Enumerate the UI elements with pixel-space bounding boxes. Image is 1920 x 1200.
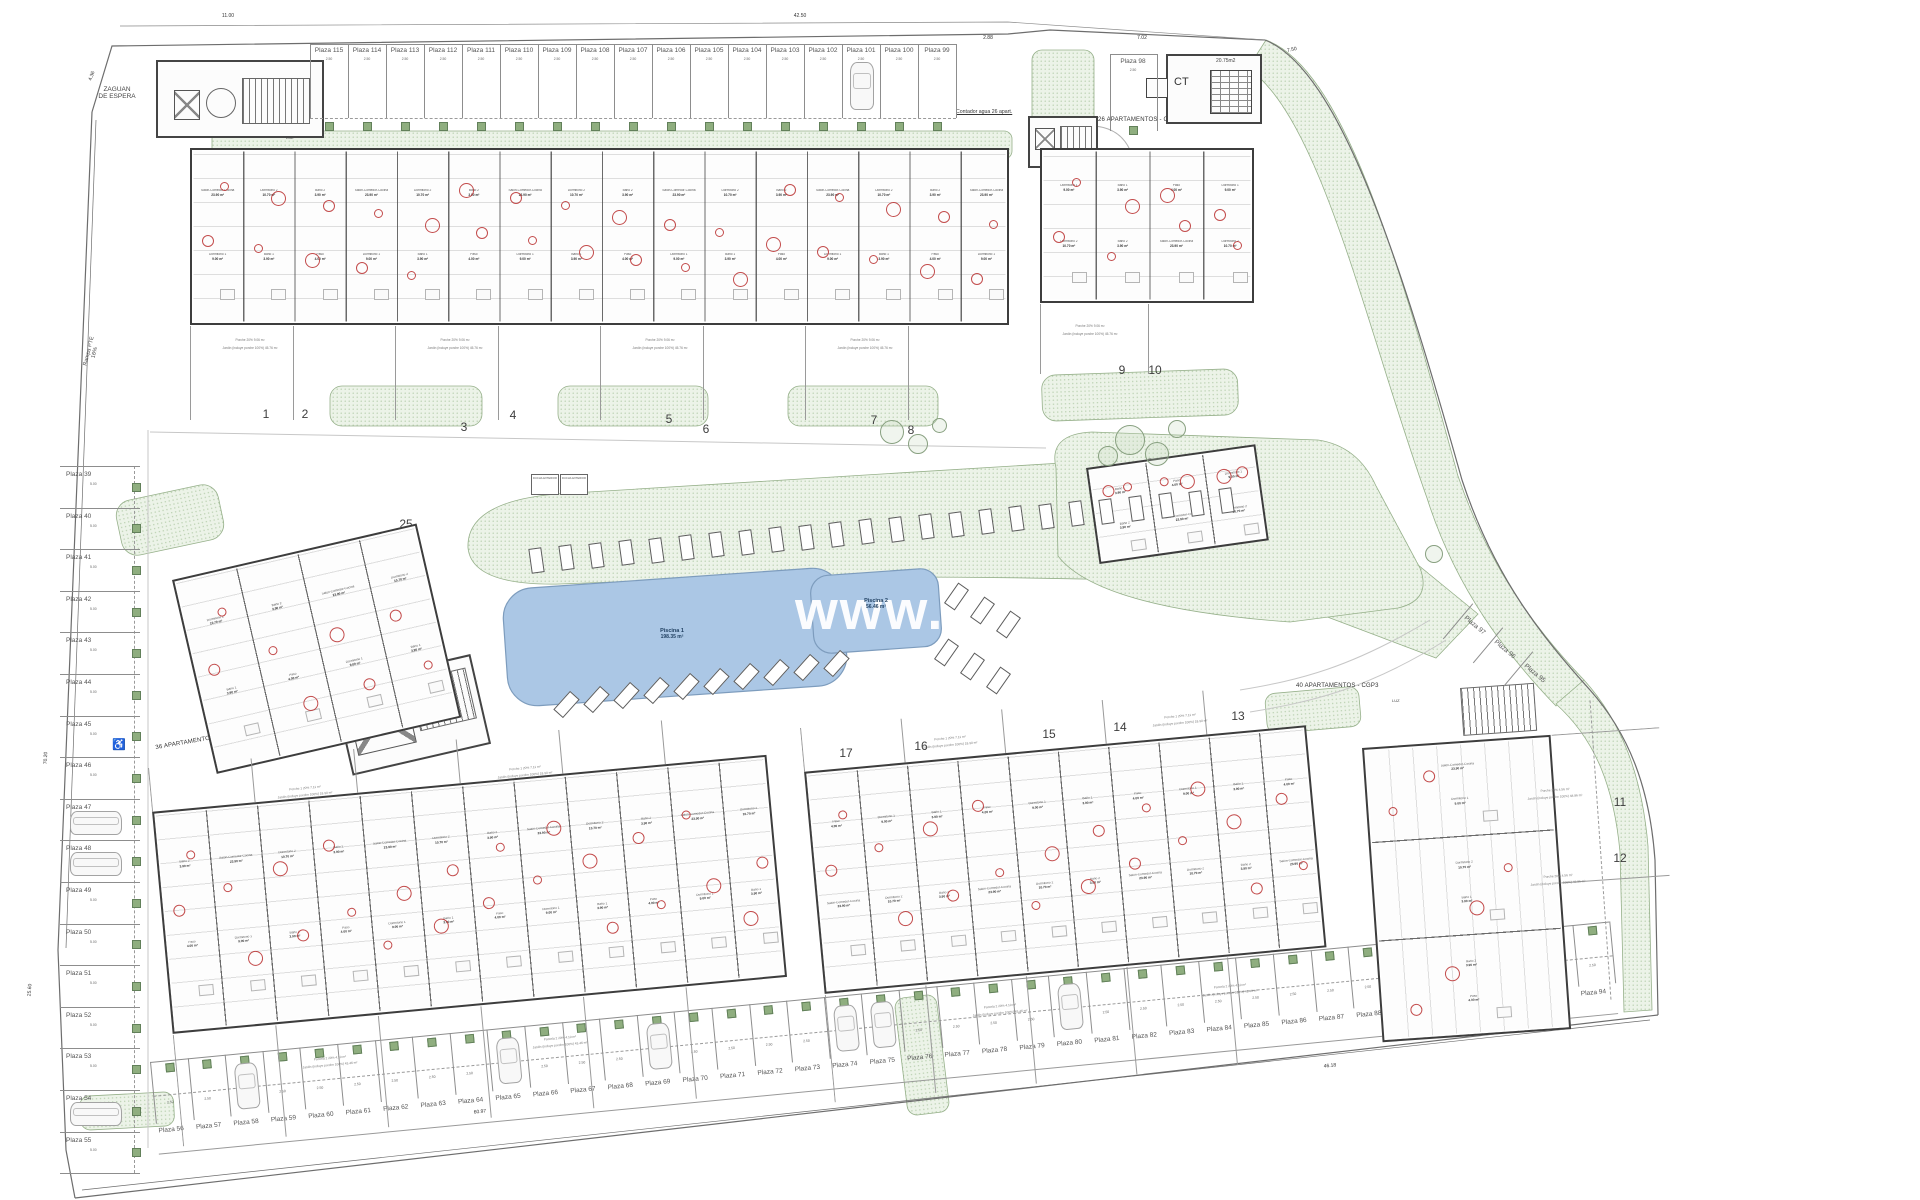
room-label: Dormitorio 210.70 m² [1170, 866, 1221, 878]
parking-stall-label: Plaza 110 [500, 47, 538, 54]
entry-core-west [156, 60, 324, 138]
door-swing-symbol [632, 832, 645, 845]
garden-divider [251, 758, 256, 802]
parking-stall [60, 466, 140, 467]
stall-depth-dim: 5.00 [90, 1023, 97, 1027]
shrub-marker [1363, 947, 1373, 957]
door-swing-symbol [1179, 220, 1191, 232]
door-swing-symbol [483, 897, 496, 910]
garden-divider [703, 326, 704, 420]
stall-depth-dim: 5.00 [90, 773, 97, 777]
room-label: Baño 13.90 m² [1213, 781, 1264, 793]
parking-stall [462, 44, 501, 118]
parking-stall-label: Plaza 106 [652, 47, 690, 54]
stall-depth-dim: 5.00 [90, 565, 97, 569]
parking-stall [804, 44, 843, 118]
room-label: Baño 23.90 m² [448, 189, 499, 196]
furniture-symbol [301, 974, 317, 986]
door-swing-symbol [561, 201, 570, 210]
garden-divider [275, 1025, 286, 1137]
furniture-symbol [938, 289, 953, 300]
garden-divider [1148, 304, 1149, 374]
room-label: Baño 23.90 m² [919, 889, 970, 901]
furniture-symbol [1187, 531, 1203, 544]
stairs-icon [242, 78, 310, 124]
shrub-marker [132, 566, 141, 575]
building-walls: Salón-Comedor-Cocina23.90 m²Dormitorio 1… [1362, 735, 1571, 1042]
parking-dashed-line [310, 118, 956, 119]
room-label: Dormitorio 210.70 m² [869, 894, 920, 906]
parking-stall [652, 44, 691, 118]
room-label: Baño 23.90 m² [313, 844, 365, 856]
room-label: Dormitorio 210.70 m² [184, 610, 247, 631]
parking-stall-label: Plaza 99 [918, 47, 956, 54]
zaguan-label: ZAGUANDE ESPERA [98, 86, 135, 100]
door-swing-symbol [1214, 209, 1226, 221]
door-swing-symbol [874, 843, 884, 853]
door-swing-symbol [1129, 857, 1142, 870]
room-label: Dormitorio 19.00 m² [1203, 184, 1254, 191]
shrub-marker [132, 899, 141, 908]
door-swing-symbol [1469, 900, 1485, 916]
shrub-marker [629, 122, 638, 131]
door-swing-symbol [356, 262, 368, 274]
garden-divider [925, 985, 936, 1093]
shrub-marker [165, 1063, 175, 1073]
room-label: Baño 23.90 m² [246, 596, 309, 617]
shrub-marker [933, 122, 942, 131]
parking-stall-label: Plaza 49 [66, 887, 91, 894]
door-swing-symbol [223, 883, 233, 893]
room-label: Paso4.00 m² [962, 804, 1013, 816]
room-label: Dormitorio 19.00 m² [861, 813, 912, 825]
room-label: Dormitorio 19.00 m² [1042, 184, 1096, 191]
door-swing-symbol [1299, 861, 1309, 871]
door-swing-symbol [1122, 482, 1132, 492]
shrub-marker [132, 649, 141, 658]
room-label: Paso4.00 m² [602, 253, 653, 260]
garden-label: Porche 20% 9.06 m² [440, 338, 469, 342]
furniture-symbol [1179, 272, 1194, 283]
shrub-marker [325, 122, 334, 131]
parking-stall-label: Plaza 55 [66, 1137, 91, 1144]
door-swing-symbol [273, 861, 289, 877]
parking-stall-label: Plaza 111 [462, 47, 500, 54]
building-south-east: Paso4.00 m²Salón-Comedor-Cocina23.90 m²D… [800, 681, 1338, 1102]
door-swing-symbol [297, 929, 310, 942]
elevator-icon [174, 90, 200, 120]
room-label: Dormitorio 210.70 m² [551, 189, 602, 196]
furniture-symbol [850, 944, 866, 956]
car-outline [850, 62, 874, 110]
room-label: Paso4.00 m² [628, 895, 680, 907]
parking-stall [766, 44, 805, 118]
room-label: Paso4.00 m² [910, 253, 961, 260]
shrub-marker [132, 774, 141, 783]
shrub-marker [515, 122, 524, 131]
garden-divider [395, 326, 396, 420]
furniture-symbol [476, 289, 491, 300]
plot-number: 3 [461, 420, 468, 434]
water-meter-26b-label: Contador agua 26 apart. [956, 109, 1012, 115]
furniture-symbol [1244, 523, 1260, 536]
door-swing-symbol [938, 211, 950, 223]
parking-stall-label: Plaza 50 [66, 929, 91, 936]
room-label: Dormitorio 19.00 m² [346, 253, 397, 260]
room-label: Paso4.00 m² [295, 253, 346, 260]
stall-width-dim: 2.50 [690, 57, 728, 61]
site-plan: www.nov ZAGUANDE ESPERA Rampa PTE 16% 26… [0, 0, 1920, 1200]
shrub-marker [743, 122, 752, 131]
parking-stall [880, 44, 919, 118]
building-walls: Dormitorio 19.00 m²Dormitorio 210.70 m²B… [1040, 148, 1254, 303]
garden-divider [1026, 976, 1037, 1084]
parking-stall-label: Plaza 73 [795, 1064, 821, 1073]
room-label: Dormitorio 19.00 m² [1372, 791, 1548, 811]
shrub-marker [857, 122, 866, 131]
door-swing-symbol [1072, 178, 1081, 187]
furniture-symbol [199, 984, 215, 996]
parking-stall-label: Plaza 112 [424, 47, 462, 54]
parking-stall-divider [60, 1173, 140, 1174]
door-swing-symbol [1044, 846, 1060, 862]
door-swing-symbol [1093, 825, 1106, 838]
stall-depth-dim: 5.00 [90, 981, 97, 985]
room-label: Dormitorio 210.70 m² [705, 189, 756, 196]
garden-divider [901, 719, 906, 763]
parking-stall [348, 44, 387, 118]
tree-symbol [1425, 545, 1443, 563]
shrub-marker [895, 122, 904, 131]
outdoor-shower-box-1: DUCHA EXTERIOR [531, 474, 559, 495]
room-label: Baño 23.90 m² [295, 189, 346, 196]
door-swing-symbol [656, 900, 666, 910]
furniture-symbol [374, 289, 389, 300]
parking-stall-label: Plaza 48 [66, 845, 91, 852]
building-walls: Paso4.00 m²Salón-Comedor-Cocina23.90 m²D… [804, 725, 1326, 994]
shrub-marker [132, 1065, 141, 1074]
garden-label: Jardín (incluye porche 100%) 45.76 m² [633, 346, 688, 350]
room-label: Paso4.00 m² [811, 818, 862, 830]
transformer-grid [1210, 70, 1252, 114]
furniture-symbol [1051, 925, 1067, 937]
room-label: Salón-Comedor-Cocina23.90 m² [807, 189, 858, 196]
room-label: Baño 23.90 m² [1383, 954, 1559, 974]
door-swing-symbol [784, 184, 796, 196]
room-label: Dormitorio 210.70 m² [723, 806, 775, 818]
parking-stall-label: Plaza 107 [614, 47, 652, 54]
door-swing-symbol [971, 273, 983, 285]
furniture-symbol [630, 289, 645, 300]
tree-symbol [932, 418, 947, 433]
door-swing-symbol [1080, 879, 1096, 895]
shrub-marker [591, 122, 600, 131]
furniture-symbol [250, 979, 266, 991]
room-label: Paso4.00 m² [262, 666, 325, 687]
room-label: Baño 13.90 m² [269, 929, 321, 941]
shrub-marker [132, 483, 141, 492]
door-swing-symbol [1233, 241, 1242, 250]
room-label: Baño 13.90 m² [911, 809, 962, 821]
stall-width-dim: 2.50 [918, 57, 956, 61]
parking-stall-label: Plaza 39 [66, 471, 91, 478]
door-swing-symbol [579, 245, 594, 260]
shrub-marker [132, 940, 141, 949]
parking-stall [690, 44, 729, 118]
dimension-label: 2.88 [983, 35, 993, 41]
door-swing-symbol [446, 864, 459, 877]
garden-divider [1227, 957, 1238, 1065]
door-swing-symbol [383, 940, 393, 950]
room-label: Baño 23.90 m² [1096, 240, 1150, 247]
parking-stall-label: Plaza 53 [66, 1053, 91, 1060]
shrub-marker [781, 122, 790, 131]
car-outline [70, 1102, 122, 1126]
room-label: Dormitorio 210.70 m² [368, 568, 431, 589]
garden-divider [600, 326, 601, 420]
door-swing-symbol [173, 904, 186, 917]
room-label: Baño 23.90 m² [602, 189, 653, 196]
room-label: Salón-Comedor-Cocina23.90 m² [192, 189, 243, 196]
dimension-label: 70.20 [43, 752, 50, 765]
stall-width-dim: 2.50 [576, 57, 614, 61]
parking-stall [918, 44, 957, 118]
door-swing-symbol [743, 911, 759, 927]
parking-stall [60, 882, 140, 883]
stall-width-dim: 2.50 [310, 57, 348, 61]
parking-stall-label: Plaza 41 [66, 554, 91, 561]
door-swing-symbol [476, 227, 488, 239]
parking-stall-label: Plaza 109 [538, 47, 576, 54]
door-swing-symbol [1179, 473, 1196, 490]
room-label: Dormitorio 19.00 m² [323, 652, 386, 673]
room-label: Salón-Comedor-Cocina23.90 m² [672, 810, 724, 822]
parking-stall [60, 508, 140, 509]
garden-divider [805, 326, 806, 420]
furniture-symbol [1483, 810, 1499, 822]
room-label: Baño 23.90 m² [620, 815, 672, 827]
stall-width-dim: 2.50 [462, 57, 500, 61]
door-swing-symbol [433, 918, 449, 934]
furniture-symbol [1202, 911, 1218, 923]
door-swing-symbol [532, 875, 542, 885]
room-label: Salón-Comedor-Cocina23.90 m² [1150, 240, 1204, 247]
stall-depth-dim: 5.00 [90, 898, 97, 902]
plot-number: 6 [703, 422, 710, 436]
garden-divider [1126, 967, 1137, 1075]
door-swing-symbol [545, 820, 561, 836]
tree-symbol [1115, 425, 1145, 455]
parking-stall [60, 1048, 140, 1049]
pool-1-label: Piscina 1198.35 m² [660, 628, 684, 640]
stall-width-dim: 2.50 [424, 57, 462, 61]
room-label: Salón-Comedor-Cocina23.90 m² [961, 189, 1009, 196]
room-label: Dormitorio 19.00 m² [500, 253, 551, 260]
door-swing-symbol [1235, 465, 1249, 479]
furniture-symbol [835, 289, 850, 300]
parking-stall-label: Plaza 52 [66, 1012, 91, 1019]
door-swing-symbol [1125, 199, 1140, 214]
furniture-symbol [609, 946, 625, 958]
shrub-marker [705, 122, 714, 131]
door-swing-symbol [510, 192, 522, 204]
shrub-marker [132, 732, 141, 741]
dimension-line [120, 22, 1265, 40]
parking-stall-label: Plaza 114 [348, 47, 386, 54]
door-swing-symbol [1410, 1003, 1423, 1016]
garden-label: Porche 20% 9.06 m² [850, 338, 879, 342]
door-swing-symbol [528, 236, 537, 245]
apartments-cgp3-label: 40 APARTAMENTOS - CGP3 [1296, 683, 1379, 689]
door-swing-symbol [1503, 863, 1513, 873]
room-label: Salón-Comedor-Cocina23.90 m² [210, 853, 262, 865]
parking-stall-label: Plaza 40 [66, 513, 91, 520]
shrub-marker [401, 122, 410, 131]
car-outline [70, 852, 122, 876]
door-swing-symbol [835, 193, 844, 202]
door-swing-symbol [247, 951, 263, 967]
room-label: Baño 13.90 m² [551, 253, 602, 260]
room-label: Salón-Comedor-Cocina23.90 m² [346, 189, 397, 196]
garden-label: Porche 20% 9.06 m² [235, 338, 264, 342]
dimension-label: 60.97 [473, 1108, 486, 1115]
stall-width-dim: 2.50 [1110, 68, 1156, 72]
furniture-symbol [455, 960, 471, 972]
parking-stall-label: Plaza 44 [66, 679, 91, 686]
car-outline [70, 811, 122, 835]
parking-stall [60, 632, 140, 633]
furniture-symbol [1072, 272, 1087, 283]
parking-stall [424, 44, 463, 118]
tree-symbol [908, 434, 928, 454]
stall-depth-dim: 5.00 [90, 607, 97, 611]
room-label: Baño 13.90 m² [858, 253, 909, 260]
room-label: Dormitorio 210.70 m² [1203, 240, 1254, 247]
room-label: Salón-Comedor-Cocina23.90 m² [518, 825, 570, 837]
room-label: Baño 13.90 m² [200, 680, 263, 701]
door-swing-symbol [1388, 807, 1398, 817]
garden-divider [1001, 709, 1006, 753]
garden-divider [908, 326, 909, 420]
room-label: Baño 13.90 m² [1096, 184, 1150, 191]
building-north-a: Salón-Comedor-Cocina23.90 m²Dormitorio 1… [190, 148, 1010, 420]
door-swing-symbol [362, 677, 376, 691]
room-label: Paso4.00 m² [1148, 475, 1206, 490]
door-swing-symbol [1160, 188, 1175, 203]
garden-divider [456, 739, 461, 783]
door-swing-symbol [898, 911, 914, 927]
dimension-label: 42.50 [794, 13, 807, 19]
door-swing-symbol [946, 889, 959, 902]
garden-strip-bottom [190, 326, 1010, 420]
parking-stall-label: Plaza 98 [1110, 58, 1156, 65]
room-label: Dormitorio 19.00 m² [371, 919, 423, 931]
shrub-marker [439, 122, 448, 131]
furniture-symbol [951, 934, 967, 946]
elevator-icon [1035, 128, 1055, 150]
door-swing-symbol [496, 843, 506, 853]
building-north-b: Dormitorio 19.00 m²Dormitorio 210.70 m²B… [1040, 148, 1255, 374]
parking-stall-label: Plaza 54 [66, 1095, 91, 1102]
parking-stall [386, 44, 425, 118]
parking-stall [60, 1007, 140, 1008]
garden-strip-bottom [1040, 304, 1255, 374]
room-label: Salón-Comedor-Cocina23.90 m² [1370, 757, 1546, 777]
parking-stall [728, 44, 767, 118]
room-label: Paso4.00 m² [756, 253, 807, 260]
furniture-symbol [1233, 272, 1248, 283]
garden-label: Porche 20% 9.06 m² [1075, 324, 1104, 328]
room-label: Baño 23.90 m² [1221, 861, 1272, 873]
furniture-symbol [243, 722, 260, 736]
garden-strip-east [1552, 727, 1680, 1030]
room-label: Salón-Comedor-Cocina23.90 m² [500, 189, 551, 196]
door-swing-symbol [995, 868, 1005, 878]
door-swing-symbol [305, 253, 320, 268]
furniture-symbol [579, 289, 594, 300]
parking-stall [60, 840, 140, 841]
stall-width-dim: 2.50 [804, 57, 842, 61]
room-label: Baño 13.90 m² [385, 638, 448, 659]
shrub-marker [132, 1107, 141, 1116]
parking-stall [60, 799, 140, 800]
parking-stall-label: Plaza 104 [728, 47, 766, 54]
stall-width-dim: 2.50 [880, 57, 918, 61]
furniture-symbol [711, 936, 727, 948]
door-swing-symbol [886, 202, 901, 217]
furniture-symbol [1001, 930, 1017, 942]
door-swing-symbol [422, 660, 433, 671]
room-label: Paso4.00 m² [448, 253, 499, 260]
room-label: Dormitorio 210.70 m² [858, 189, 909, 196]
furniture-symbol [989, 289, 1004, 300]
furniture-symbol [900, 939, 916, 951]
furniture-symbol [220, 289, 235, 300]
parking-stall-label: Plaza 43 [66, 637, 91, 644]
parking-stall [60, 1090, 140, 1091]
furniture-symbol [1490, 908, 1506, 920]
room-label: Dormitorio 210.70 m² [569, 820, 621, 832]
parking-stall [60, 965, 140, 966]
room-label: Salón-Comedor-Cocina23.90 m² [307, 582, 370, 603]
ct-label: CT [1174, 76, 1189, 88]
garden-divider [293, 326, 294, 420]
room-label: Baño 13.90 m² [397, 253, 448, 260]
room-label: Dormitorio 210.70 m² [1019, 880, 1070, 892]
furniture-symbol [1130, 539, 1146, 552]
door-swing-symbol [388, 608, 402, 622]
door-swing-symbol [766, 237, 781, 252]
furniture-symbol [427, 680, 444, 694]
door-swing-symbol [347, 908, 357, 918]
door-swing-symbol [396, 885, 412, 901]
shrub-marker [363, 122, 372, 131]
door-swing-symbol [869, 255, 878, 264]
room-label: Paso4.00 m² [1150, 184, 1204, 191]
furniture-symbol [1303, 902, 1319, 914]
door-swing-symbol [267, 645, 278, 656]
door-swing-symbol [207, 663, 221, 677]
door-swing-symbol [1444, 966, 1460, 982]
door-swing-symbol [1141, 803, 1151, 813]
garden-divider [661, 720, 666, 764]
stall-depth-dim: 5.00 [90, 482, 97, 486]
furniture-symbol [558, 950, 574, 962]
building-south-west: Baño 23.90 m²Paso4.00 m²Salón-Comedor-Co… [148, 711, 798, 1146]
parking-stall-label: Plaza 45 [66, 721, 91, 728]
room-label: Dormitorio 19.00 m² [525, 905, 577, 917]
door-swing-symbol [1190, 781, 1206, 797]
